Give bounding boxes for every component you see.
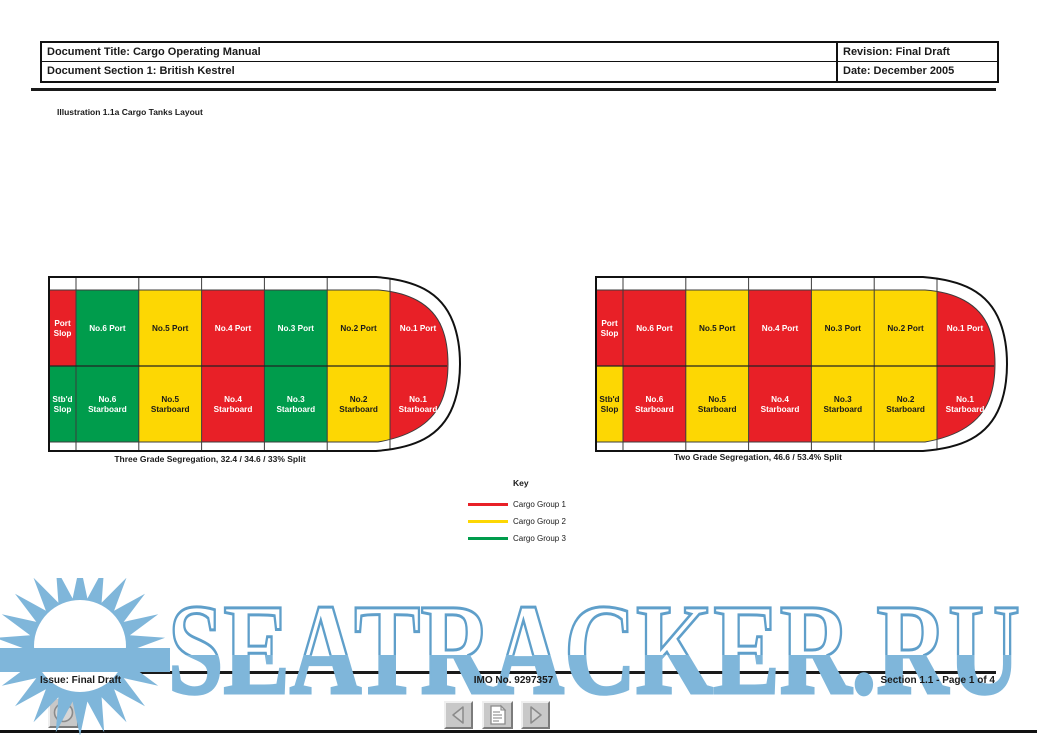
tank-label: No.3	[287, 395, 305, 404]
key-color-line	[468, 503, 508, 506]
key-entry: Cargo Group 1	[468, 496, 566, 513]
tank-label: No.1	[956, 395, 974, 404]
arrow-left-icon	[448, 705, 469, 725]
tank-label: No.6	[99, 395, 117, 404]
tank-label: No.5	[708, 395, 726, 404]
key-color-line	[468, 537, 508, 540]
circle-slash-icon	[52, 701, 75, 724]
tank-label: No.6 Port	[636, 324, 673, 333]
tank-label: No.6 Port	[89, 324, 126, 333]
tank-cell	[49, 290, 76, 366]
tank-label: No.3 Port	[825, 324, 862, 333]
tank-label: No.5	[161, 395, 179, 404]
tank-label: No.2 Port	[340, 324, 377, 333]
document-page-icon	[487, 704, 509, 726]
next-page-button[interactable]	[521, 701, 550, 729]
tank-cell	[596, 290, 623, 366]
tank-cell	[49, 366, 76, 442]
tank-label: Slop	[54, 405, 72, 414]
tank-cell	[749, 366, 812, 442]
tank-label: No.2	[350, 395, 368, 404]
arrow-right-icon	[525, 705, 546, 725]
page-bottom-edge	[0, 730, 1037, 733]
tank-label: Slop	[54, 329, 72, 338]
tank-label: Starboard	[399, 405, 438, 414]
key-entry: Cargo Group 2	[468, 513, 566, 530]
key-legend: Key Cargo Group 1Cargo Group 2Cargo Grou…	[468, 478, 566, 547]
tank-label: No.4 Port	[215, 324, 252, 333]
tank-label: No.1	[409, 395, 427, 404]
tank-label: Starboard	[151, 405, 190, 414]
document-title: Document Title: Cargo Operating Manual	[42, 43, 836, 62]
tank-label: Starboard	[823, 405, 862, 414]
tank-label: Slop	[601, 405, 619, 414]
tank-label: Slop	[601, 329, 619, 338]
illustration-title: Illustration 1.1a Cargo Tanks Layout	[57, 107, 203, 117]
tank-label: Starboard	[946, 405, 985, 414]
key-entry: Cargo Group 3	[468, 530, 566, 547]
cargo-tank-diagram-three-grade: PortSlopNo.6 PortNo.5 PortNo.4 PortNo.3 …	[48, 276, 463, 457]
tank-label: Starboard	[214, 405, 253, 414]
tank-label: Starboard	[698, 405, 737, 414]
footer-divider-rule	[31, 671, 996, 674]
date-label: Date: December 2005	[836, 62, 997, 81]
tank-cell	[686, 366, 749, 442]
tank-label: No.3	[834, 395, 852, 404]
tank-cell	[811, 366, 874, 442]
diagram-caption-two-grade: Two Grade Segregation, 46.6 / 53.4% Spli…	[588, 452, 928, 462]
tank-label: No.4	[224, 395, 242, 404]
tank-cell	[327, 366, 390, 442]
tank-label: No.1 Port	[400, 324, 437, 333]
cargo-tank-diagram-two-grade: PortSlopNo.6 PortNo.5 PortNo.4 PortNo.3 …	[595, 276, 1010, 457]
tank-cell	[202, 366, 265, 442]
footer-section-page: Section 1.1 - Page 1 of 4	[881, 675, 995, 686]
key-entry-label: Cargo Group 3	[513, 534, 566, 543]
tank-label: Stb'd	[52, 395, 72, 404]
viewer-tool-button[interactable]	[48, 697, 79, 728]
tank-label: No.6	[646, 395, 664, 404]
tank-cell	[874, 366, 937, 442]
watermark-text: SEATRACKER.RU	[168, 578, 1020, 722]
key-entry-label: Cargo Group 1	[513, 500, 566, 509]
tank-label: Starboard	[88, 405, 127, 414]
document-header-table: Document Title: Cargo Operating Manual R…	[40, 41, 999, 83]
key-title: Key	[513, 478, 566, 488]
revision-label: Revision: Final Draft	[836, 43, 997, 62]
header-divider-rule	[31, 88, 996, 91]
tank-label: No.1 Port	[947, 324, 984, 333]
tank-label: Port	[54, 319, 71, 328]
tank-label: Stb'd	[599, 395, 619, 404]
tank-cell	[264, 366, 327, 442]
tank-label: No.5 Port	[699, 324, 736, 333]
document-section: Document Section 1: British Kestrel	[42, 62, 836, 81]
key-color-line	[468, 520, 508, 523]
tank-label: No.3 Port	[278, 324, 315, 333]
key-entry-label: Cargo Group 2	[513, 517, 566, 526]
tank-cell	[623, 366, 686, 442]
tank-cell	[139, 366, 202, 442]
seatracker-watermark: SEATRACKER.RUSEATRACKER.RU	[0, 578, 1037, 735]
previous-page-button[interactable]	[444, 701, 473, 729]
watermark-text: SEATRACKER.RU	[168, 578, 1020, 722]
tank-label: No.2	[897, 395, 915, 404]
tank-label: Starboard	[339, 405, 378, 414]
tank-cell	[76, 366, 139, 442]
tank-cell	[596, 366, 623, 442]
footer-imo-number: IMO No. 9297357	[31, 675, 996, 686]
diagram-caption-three-grade: Three Grade Segregation, 32.4 / 34.6 / 3…	[40, 454, 380, 464]
tank-label: Port	[601, 319, 618, 328]
tank-label: Starboard	[635, 405, 674, 414]
contents-page-button[interactable]	[482, 701, 513, 729]
tank-label: No.2 Port	[887, 324, 924, 333]
tank-label: Starboard	[886, 405, 925, 414]
tank-label: Starboard	[276, 405, 315, 414]
tank-label: No.4 Port	[762, 324, 799, 333]
tank-label: Starboard	[761, 405, 800, 414]
tank-label: No.4	[771, 395, 789, 404]
sun-rays-icon	[0, 578, 165, 735]
tank-label: No.5 Port	[152, 324, 189, 333]
